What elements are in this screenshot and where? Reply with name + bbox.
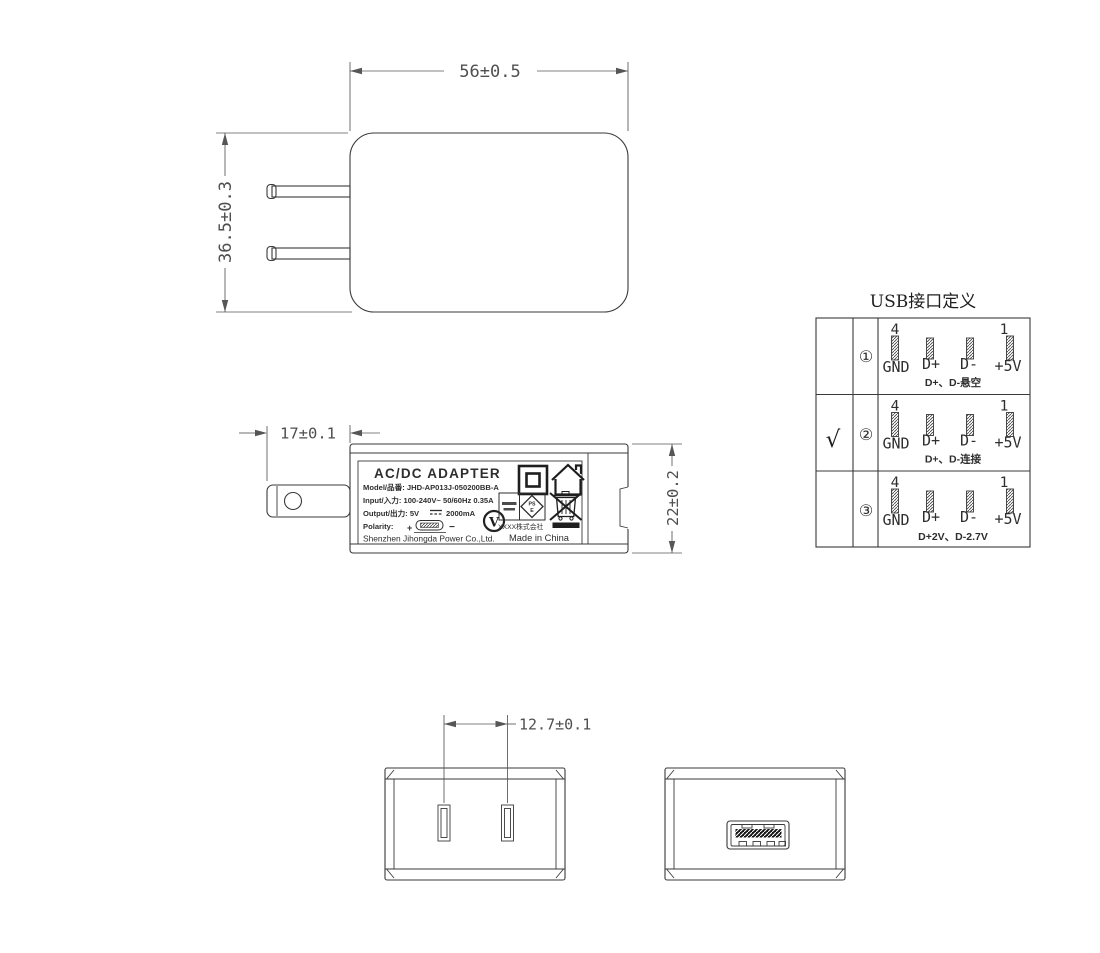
row1-label-dplus: D+ [922, 355, 940, 373]
label-model: Model/品番: JHD-AP013J-050200BB-A [363, 482, 499, 492]
row2-label-5v: +5V [994, 434, 1021, 452]
row1-circled-number: ① [859, 347, 873, 366]
dim-body-width-text: 56±0.5 [459, 62, 520, 82]
label-input: Input/入力: 100-240V~ 50/60Hz 0.35A [363, 495, 494, 505]
row1-label-gnd: GND [882, 358, 909, 376]
made-in-china-text: Made in China [509, 533, 570, 543]
row1-label-dminus: D- [960, 355, 978, 373]
polarity-minus-sign: − [449, 522, 455, 533]
row2-label-dplus: D+ [922, 432, 940, 450]
row3-label-dminus: D- [960, 508, 978, 526]
polarity-plus-sign: + [407, 523, 412, 533]
label-output-prefix: Output/出力: 5V [363, 508, 420, 518]
dim-prong-length-text: 17±0.1 [280, 425, 336, 443]
row3-caption: D+2V、D-2.7V [918, 531, 988, 543]
row2-label-gnd: GND [882, 435, 909, 453]
dim-body-height-text: 36.5±0.3 [216, 181, 236, 263]
dim-pin-pitch-text: 12.7±0.1 [519, 716, 591, 734]
row2-circled-number: ② [859, 425, 873, 444]
row3-label-5v: +5V [994, 510, 1021, 528]
technical-drawing-canvas: 56±0.5 36.5±0.3 [0, 0, 1100, 953]
row3-label-gnd: GND [882, 511, 909, 529]
row2-label-dminus: D- [960, 432, 978, 450]
row1-label-5v: +5V [994, 357, 1021, 375]
dim-body-depth-text: 22±0.2 [664, 470, 682, 526]
label-polarity: Polarity: [363, 522, 393, 531]
pse-letters-bottom: E [530, 508, 534, 514]
drawing-page: 56±0.5 36.5±0.3 [0, 0, 1100, 953]
label-company: Shenzhen Jihongda Power Co.,Ltd. [363, 534, 495, 544]
background [0, 0, 1100, 953]
row3-circled-number: ③ [859, 501, 873, 520]
row2-caption: D+、D-连接 [925, 453, 982, 466]
label-output-suffix: 2000mA [446, 509, 476, 518]
usb-table-title: USB接口定义 [870, 292, 976, 312]
row2-check-mark: √ [826, 427, 841, 453]
weee-bar [553, 523, 580, 529]
pse-company-text: XXXX株式会社 [498, 522, 544, 531]
pse-letters-top: PS [529, 502, 536, 508]
label-title: AC/DC ADAPTER [374, 466, 501, 481]
row1-caption: D+、D-悬空 [925, 376, 981, 389]
row3-label-dplus: D+ [922, 508, 940, 526]
